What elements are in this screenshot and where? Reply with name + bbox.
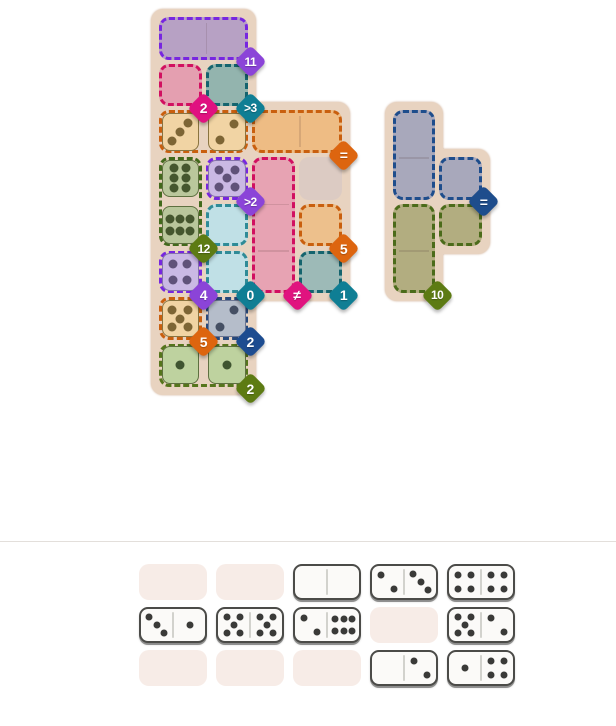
pip-dot xyxy=(417,579,424,586)
domino-half-2 xyxy=(405,652,436,684)
pip-dot xyxy=(348,627,355,634)
pip-dot xyxy=(270,614,277,621)
domino-half-1 xyxy=(174,609,205,641)
tray-domino-2-3[interactable] xyxy=(370,564,438,600)
pip-dot xyxy=(176,127,185,136)
domino-half-4 xyxy=(482,652,513,684)
pip-dot xyxy=(166,227,175,236)
domino-half-0 xyxy=(295,566,326,598)
tray-slot-empty xyxy=(293,650,361,686)
domino-half-5 xyxy=(449,609,480,641)
badge-label: = xyxy=(480,195,488,209)
domino-half-2 xyxy=(482,609,513,641)
badge-label: >2 xyxy=(244,196,257,208)
pip-dot xyxy=(182,184,191,193)
pip-dot xyxy=(332,616,339,623)
pip-dot xyxy=(168,305,177,314)
pip-dot xyxy=(340,627,347,634)
badge-label: >3 xyxy=(244,102,257,114)
pip-dot xyxy=(256,629,263,636)
pip-dot xyxy=(223,361,232,370)
pip-dot xyxy=(455,571,462,578)
pip-dot xyxy=(467,586,474,593)
constraint-badge: 10 xyxy=(420,278,454,312)
pip-dot xyxy=(182,164,191,173)
domino-half-4 xyxy=(482,566,513,598)
pip-dot xyxy=(270,629,277,636)
pip-dot xyxy=(168,136,177,145)
pip-dot xyxy=(467,571,474,578)
pip-dot xyxy=(488,614,495,621)
placed-domino-half-6[interactable] xyxy=(162,160,200,198)
pip-dot xyxy=(411,657,418,664)
badge-label: ≠ xyxy=(293,288,301,302)
tray-domino-3-1[interactable] xyxy=(139,607,207,643)
tray-domino-0-2[interactable] xyxy=(370,650,438,686)
pip-dot xyxy=(230,165,239,174)
pips-puzzle-app: 112>3=>212540≠1522=10 xyxy=(0,0,616,726)
badge-label: 2 xyxy=(246,382,254,396)
constraint-badge: 2 xyxy=(233,325,267,359)
pip-dot xyxy=(176,227,185,236)
domino-half-3 xyxy=(405,566,436,598)
constraint-badge: = xyxy=(467,185,501,219)
domino-half-6 xyxy=(328,609,359,641)
pip-dot xyxy=(488,672,495,679)
pip-dot xyxy=(215,183,224,192)
badge-label: 0 xyxy=(246,288,254,302)
constraint-badge: ≠ xyxy=(280,278,314,312)
pip-dot xyxy=(454,629,461,636)
constraint-badge: 2 xyxy=(187,91,221,125)
domino-half-2 xyxy=(372,566,403,598)
pip-dot xyxy=(237,614,244,621)
pip-dot xyxy=(340,616,347,623)
badge-label: 5 xyxy=(200,335,208,349)
pip-dot xyxy=(153,622,160,629)
constraint-badge: 1 xyxy=(327,278,361,312)
pip-dot xyxy=(500,629,507,636)
domino-half-2 xyxy=(295,609,326,641)
constraint-badge: >3 xyxy=(233,91,267,125)
pip-dot xyxy=(170,174,179,183)
badge-label: 11 xyxy=(245,56,257,68)
pip-dot xyxy=(256,614,263,621)
tray-domino-1-4[interactable] xyxy=(447,650,515,686)
badge-label: = xyxy=(340,148,348,162)
tray-slot-empty xyxy=(216,650,284,686)
pip-dot xyxy=(170,164,179,173)
pip-dot xyxy=(488,586,495,593)
pip-dot xyxy=(182,174,191,183)
pip-dot xyxy=(176,215,185,224)
constraint-badge: 11 xyxy=(233,45,267,79)
pip-dot xyxy=(230,622,237,629)
pip-dot xyxy=(168,323,177,332)
badge-label: 12 xyxy=(198,243,210,255)
region-navy-eq-main[interactable] xyxy=(393,110,436,199)
domino-half-5 xyxy=(251,609,282,641)
constraint-badge: = xyxy=(327,138,361,172)
badge-label: 4 xyxy=(200,288,208,302)
pip-dot xyxy=(223,629,230,636)
pip-dot xyxy=(500,672,507,679)
pip-dot xyxy=(169,275,178,284)
tray-domino-2-6[interactable] xyxy=(293,607,361,643)
pip-dot xyxy=(215,135,224,144)
cell-divider xyxy=(206,23,208,54)
pip-dot xyxy=(424,587,431,594)
cell-divider xyxy=(399,250,430,252)
constraint-badge: 5 xyxy=(187,325,221,359)
pip-dot xyxy=(390,586,397,593)
pip-dot xyxy=(500,586,507,593)
badge-label: 10 xyxy=(431,289,443,301)
pip-dot xyxy=(166,215,175,224)
constraint-badge: >2 xyxy=(233,185,267,219)
constraint-badge: 0 xyxy=(233,278,267,312)
pip-dot xyxy=(146,614,153,621)
domino-half-0 xyxy=(328,566,359,598)
pip-dot xyxy=(169,259,178,268)
cell-divider xyxy=(258,250,289,252)
tray-domino-5-5[interactable] xyxy=(216,607,284,643)
badge-label: 5 xyxy=(340,242,348,256)
constraint-badge: 2 xyxy=(233,372,267,406)
domino-half-4 xyxy=(449,566,480,598)
pip-dot xyxy=(160,630,167,637)
tray-slot-empty xyxy=(139,650,207,686)
pip-dot xyxy=(170,184,179,193)
pip-dot xyxy=(454,614,461,621)
pip-dot xyxy=(215,165,224,174)
pip-dot xyxy=(500,657,507,664)
tray-slot-empty xyxy=(139,564,207,600)
badge-label: 2 xyxy=(246,335,254,349)
badge-label: 2 xyxy=(200,101,208,115)
pip-dot xyxy=(176,361,185,370)
domino-half-0 xyxy=(372,652,403,684)
pip-dot xyxy=(348,616,355,623)
constraint-badge: 12 xyxy=(187,232,221,266)
cell-divider xyxy=(299,116,301,147)
constraint-badge: 5 xyxy=(327,232,361,266)
pip-dot xyxy=(468,629,475,636)
pip-dot xyxy=(455,586,462,593)
pip-dot xyxy=(263,622,270,629)
pip-dot xyxy=(176,314,185,323)
region-pink-neq[interactable] xyxy=(252,157,295,293)
pip-dot xyxy=(237,629,244,636)
pip-dot xyxy=(186,215,195,224)
domino-half-1 xyxy=(449,652,480,684)
pip-dot xyxy=(488,571,495,578)
domino-half-5 xyxy=(218,609,249,641)
pip-dot xyxy=(461,665,468,672)
pip-dot xyxy=(313,629,320,636)
pip-dot xyxy=(500,571,507,578)
tray-slot-empty xyxy=(370,607,438,643)
section-divider xyxy=(0,541,616,542)
pip-dot xyxy=(301,614,308,621)
pip-dot xyxy=(468,614,475,621)
cell-divider xyxy=(399,157,430,159)
pip-dot xyxy=(223,614,230,621)
constraint-badge: 4 xyxy=(187,278,221,312)
badge-label: 1 xyxy=(340,288,348,302)
pip-dot xyxy=(410,571,417,578)
domino-half-3 xyxy=(141,609,172,641)
pip-dot xyxy=(423,672,430,679)
tray-domino-4-4[interactable] xyxy=(447,564,515,600)
pip-dot xyxy=(332,627,339,634)
pip-dot xyxy=(223,174,232,183)
pip-dot xyxy=(461,622,468,629)
tray-domino-5-2[interactable] xyxy=(447,607,515,643)
pip-dot xyxy=(488,657,495,664)
pip-dot xyxy=(378,571,385,578)
tray-domino-0-0[interactable] xyxy=(293,564,361,600)
tray-slot-empty xyxy=(216,564,284,600)
pip-dot xyxy=(186,622,193,629)
